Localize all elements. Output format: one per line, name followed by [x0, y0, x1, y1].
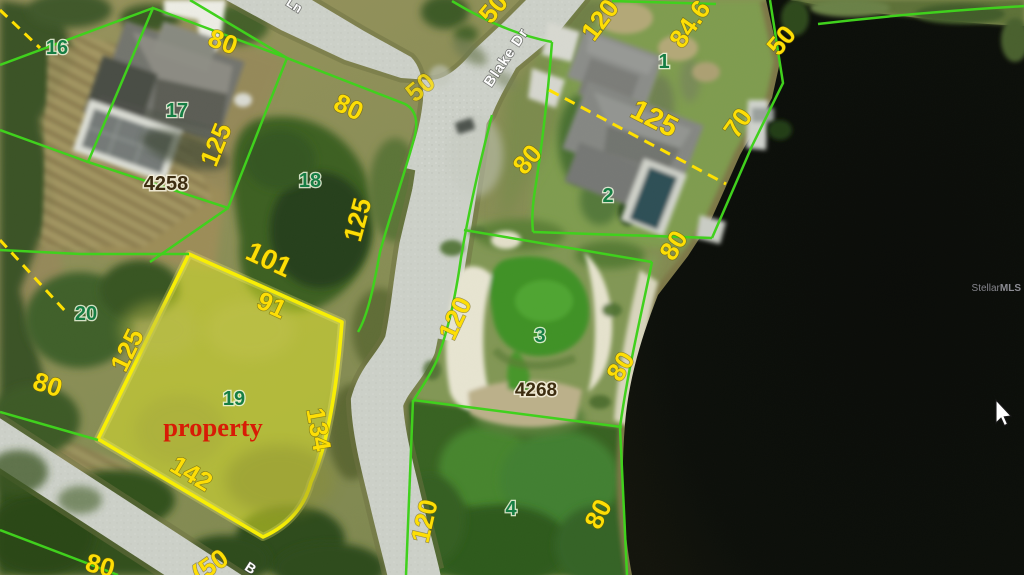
svg-text:StellarMLS: StellarMLS [972, 283, 1022, 294]
